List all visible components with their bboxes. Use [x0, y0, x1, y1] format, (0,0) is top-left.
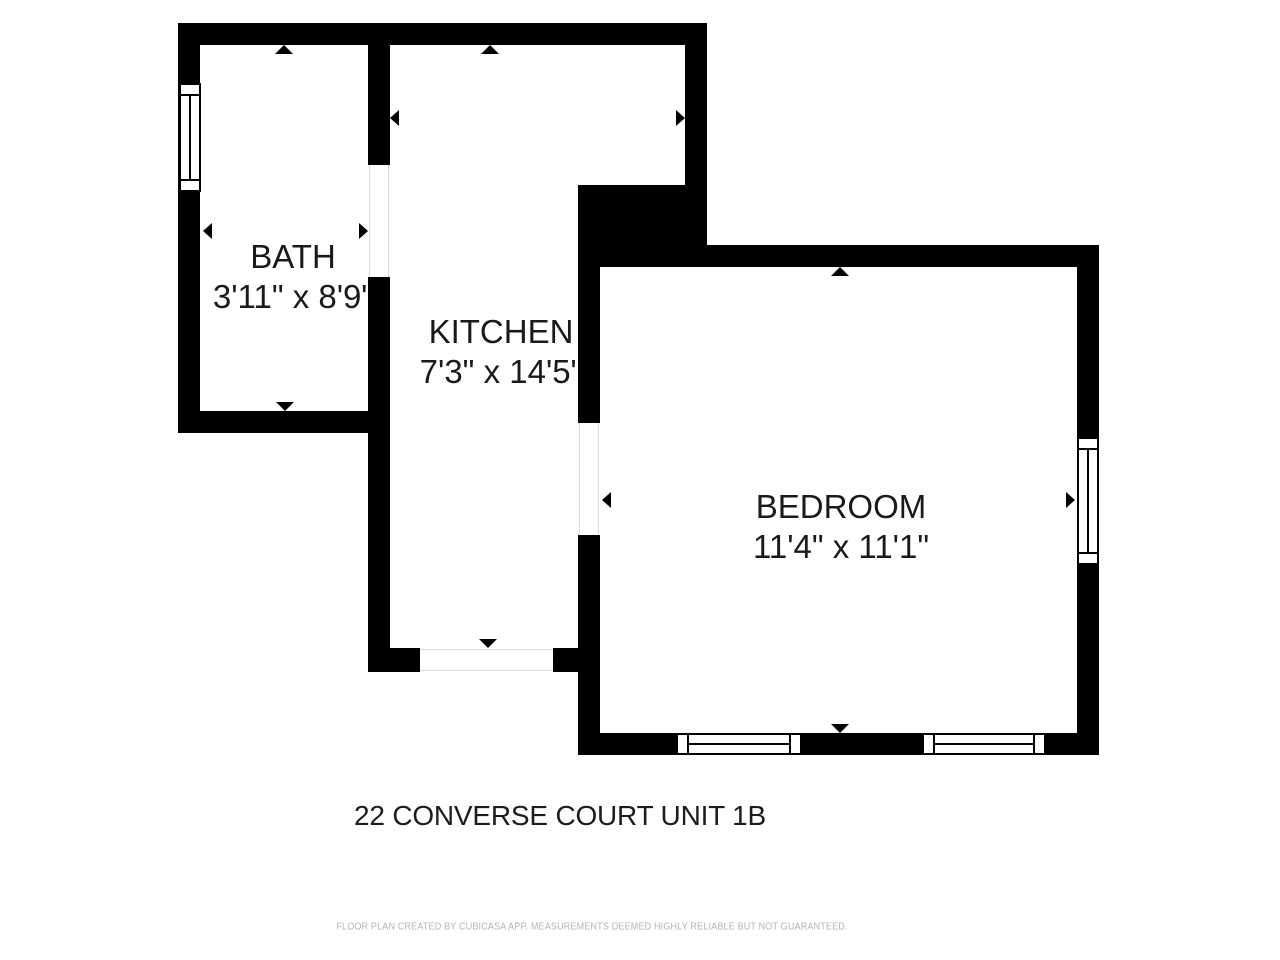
door-opening — [579, 423, 599, 535]
dimension-arrow-right-icon — [359, 223, 368, 239]
window-frame-line — [1087, 450, 1089, 552]
wall-segment — [578, 267, 600, 423]
wall-segment — [578, 245, 1099, 267]
dimension-arrow-left-icon — [203, 223, 212, 239]
wall-segment — [178, 23, 707, 45]
wall-segment — [578, 535, 600, 755]
room-label-bedroom: BEDROOM 11'4" x 11'1" — [753, 487, 929, 567]
dimension-arrow-down-icon — [479, 639, 497, 648]
dimension-arrow-right-icon — [676, 110, 685, 126]
window-frame-line — [789, 735, 791, 753]
room-label-bath: BATH 3'11" x 8'9" — [213, 237, 373, 317]
window-frame-line — [189, 96, 191, 179]
footer-disclaimer: FLOOR PLAN CREATED BY CUBICASA APP. MEAS… — [336, 922, 847, 933]
window-frame-line — [935, 743, 1033, 745]
dimension-arrow-down-icon — [831, 724, 849, 733]
kitchen-room-dimensions: 7'3" x 14'5" — [420, 352, 583, 392]
wall-segment — [368, 45, 390, 165]
dimension-arrow-left-icon — [390, 110, 399, 126]
wall-segment — [368, 648, 420, 672]
dimension-arrow-up-icon — [831, 267, 849, 276]
room-label-kitchen: KITCHEN 7'3" x 14'5" — [420, 312, 583, 392]
window-frame-line — [689, 743, 789, 745]
door-opening — [369, 165, 389, 277]
dimension-arrow-down-icon — [276, 402, 294, 411]
window-frame-line — [1079, 552, 1097, 554]
page-title: 22 CONVERSE COURT UNIT 1B — [354, 800, 766, 832]
dimension-arrow-up-icon — [275, 45, 293, 54]
wall-segment — [368, 277, 390, 672]
dimension-arrow-left-icon — [602, 492, 611, 508]
bath-room-dimensions: 3'11" x 8'9" — [213, 277, 373, 317]
window — [676, 733, 802, 755]
door-opening — [420, 649, 553, 671]
window — [179, 83, 201, 192]
window-frame-line — [1033, 735, 1035, 753]
window — [922, 733, 1046, 755]
dimension-arrow-up-icon — [481, 45, 499, 54]
window-frame-line — [181, 179, 199, 181]
kitchen-room-name: KITCHEN — [420, 312, 583, 352]
window — [1077, 437, 1099, 565]
floor-plan-page: BATH 3'11" x 8'9" KITCHEN 7'3" x 14'5" B… — [0, 0, 1280, 960]
floor-plan-drawing: BATH 3'11" x 8'9" KITCHEN 7'3" x 14'5" B… — [0, 0, 1280, 800]
bedroom-room-dimensions: 11'4" x 11'1" — [753, 527, 929, 567]
wall-segment — [178, 411, 390, 433]
bath-room-name: BATH — [213, 237, 373, 277]
wall-segment — [685, 23, 707, 185]
bedroom-room-name: BEDROOM — [753, 487, 929, 527]
dimension-arrow-right-icon — [1066, 492, 1075, 508]
